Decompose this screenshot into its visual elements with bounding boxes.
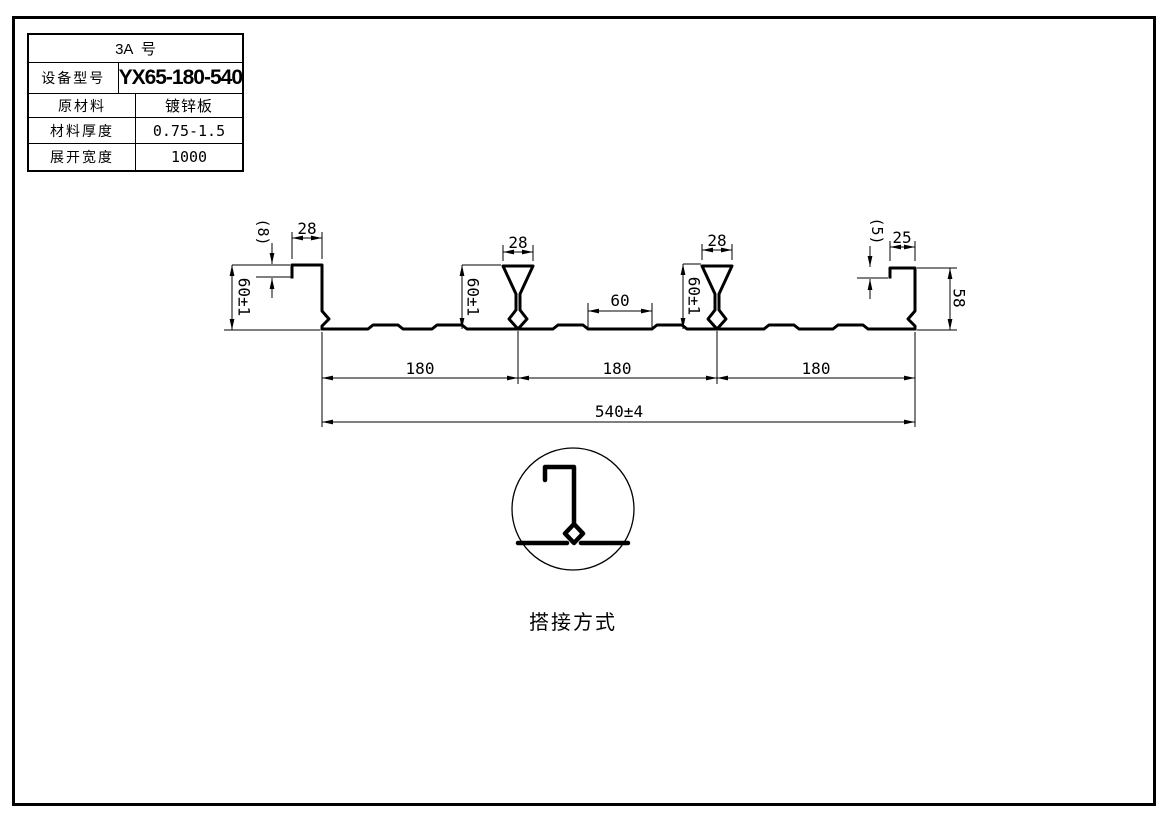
dim-rib1-height: 60±1: [464, 278, 483, 317]
dim-left-lip: (8): [254, 218, 272, 245]
lap-detail-label: 搭接方式: [529, 611, 617, 634]
dim-pitch-2: 180: [603, 359, 632, 378]
profile-left-edge: [292, 265, 329, 329]
drawing-sheet: 3A 号 设备型号 YX65-180-540 原材料 镀锌板 材料厚度 0.75…: [0, 0, 1169, 827]
dim-rib2-top-width: 28: [707, 231, 726, 250]
profile-right-edge: [890, 268, 915, 329]
lap-detail: 搭接方式: [512, 448, 634, 634]
dimension-texts: 28 (8) 60±1 28 60±1 60 28 60±1 (5) 25 58…: [235, 217, 969, 421]
profile-bottom-flange: [322, 325, 915, 329]
dim-right-top-width: 25: [892, 228, 911, 247]
dim-pitch-1: 180: [406, 359, 435, 378]
dim-right-lip: (5): [868, 217, 886, 244]
profile-drawing: 28 (8) 60±1 28 60±1 60 28 60±1 (5) 25 58…: [0, 0, 1169, 827]
dim-rib1-top-width: 28: [508, 233, 527, 252]
dim-right-height: 58: [950, 288, 969, 307]
detail-hook: [545, 467, 574, 524]
dim-overall-width: 540±4: [595, 402, 643, 421]
detail-lock-diamond: [565, 524, 583, 543]
profile-rib-1: [503, 266, 533, 329]
dim-pitch-3: 180: [802, 359, 831, 378]
dim-left-top-width: 28: [297, 219, 316, 238]
profile-section: [292, 265, 915, 329]
dim-mid-flat: 60: [610, 291, 629, 310]
dim-rib2-height: 60±1: [685, 277, 704, 316]
profile-rib-2: [702, 266, 732, 329]
dim-left-height: 60±1: [235, 278, 254, 317]
